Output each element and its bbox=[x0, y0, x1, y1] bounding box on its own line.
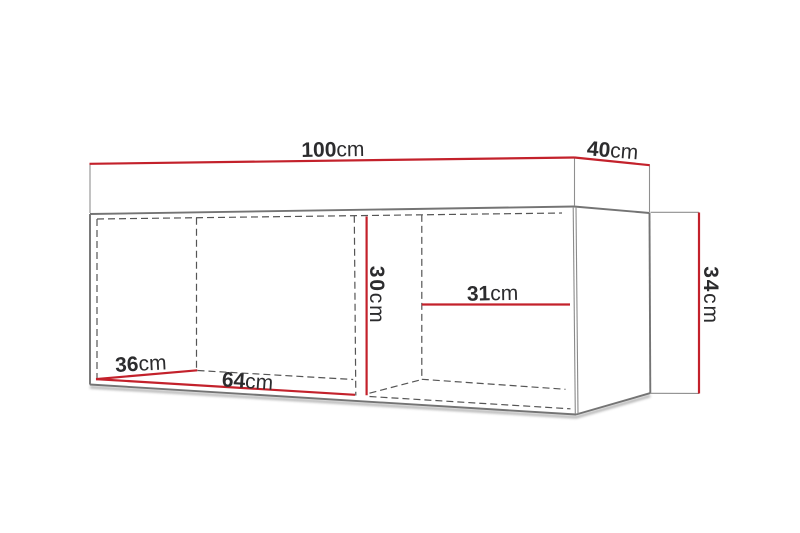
svg-text:100cm: 100cm bbox=[301, 138, 364, 162]
svg-text:34cm: 34cm bbox=[699, 266, 722, 325]
svg-text:31cm: 31cm bbox=[467, 282, 519, 306]
svg-text:30cm: 30cm bbox=[365, 266, 388, 325]
svg-text:40cm: 40cm bbox=[586, 137, 639, 164]
svg-text:36cm: 36cm bbox=[115, 351, 167, 377]
svg-text:64cm: 64cm bbox=[221, 368, 274, 395]
